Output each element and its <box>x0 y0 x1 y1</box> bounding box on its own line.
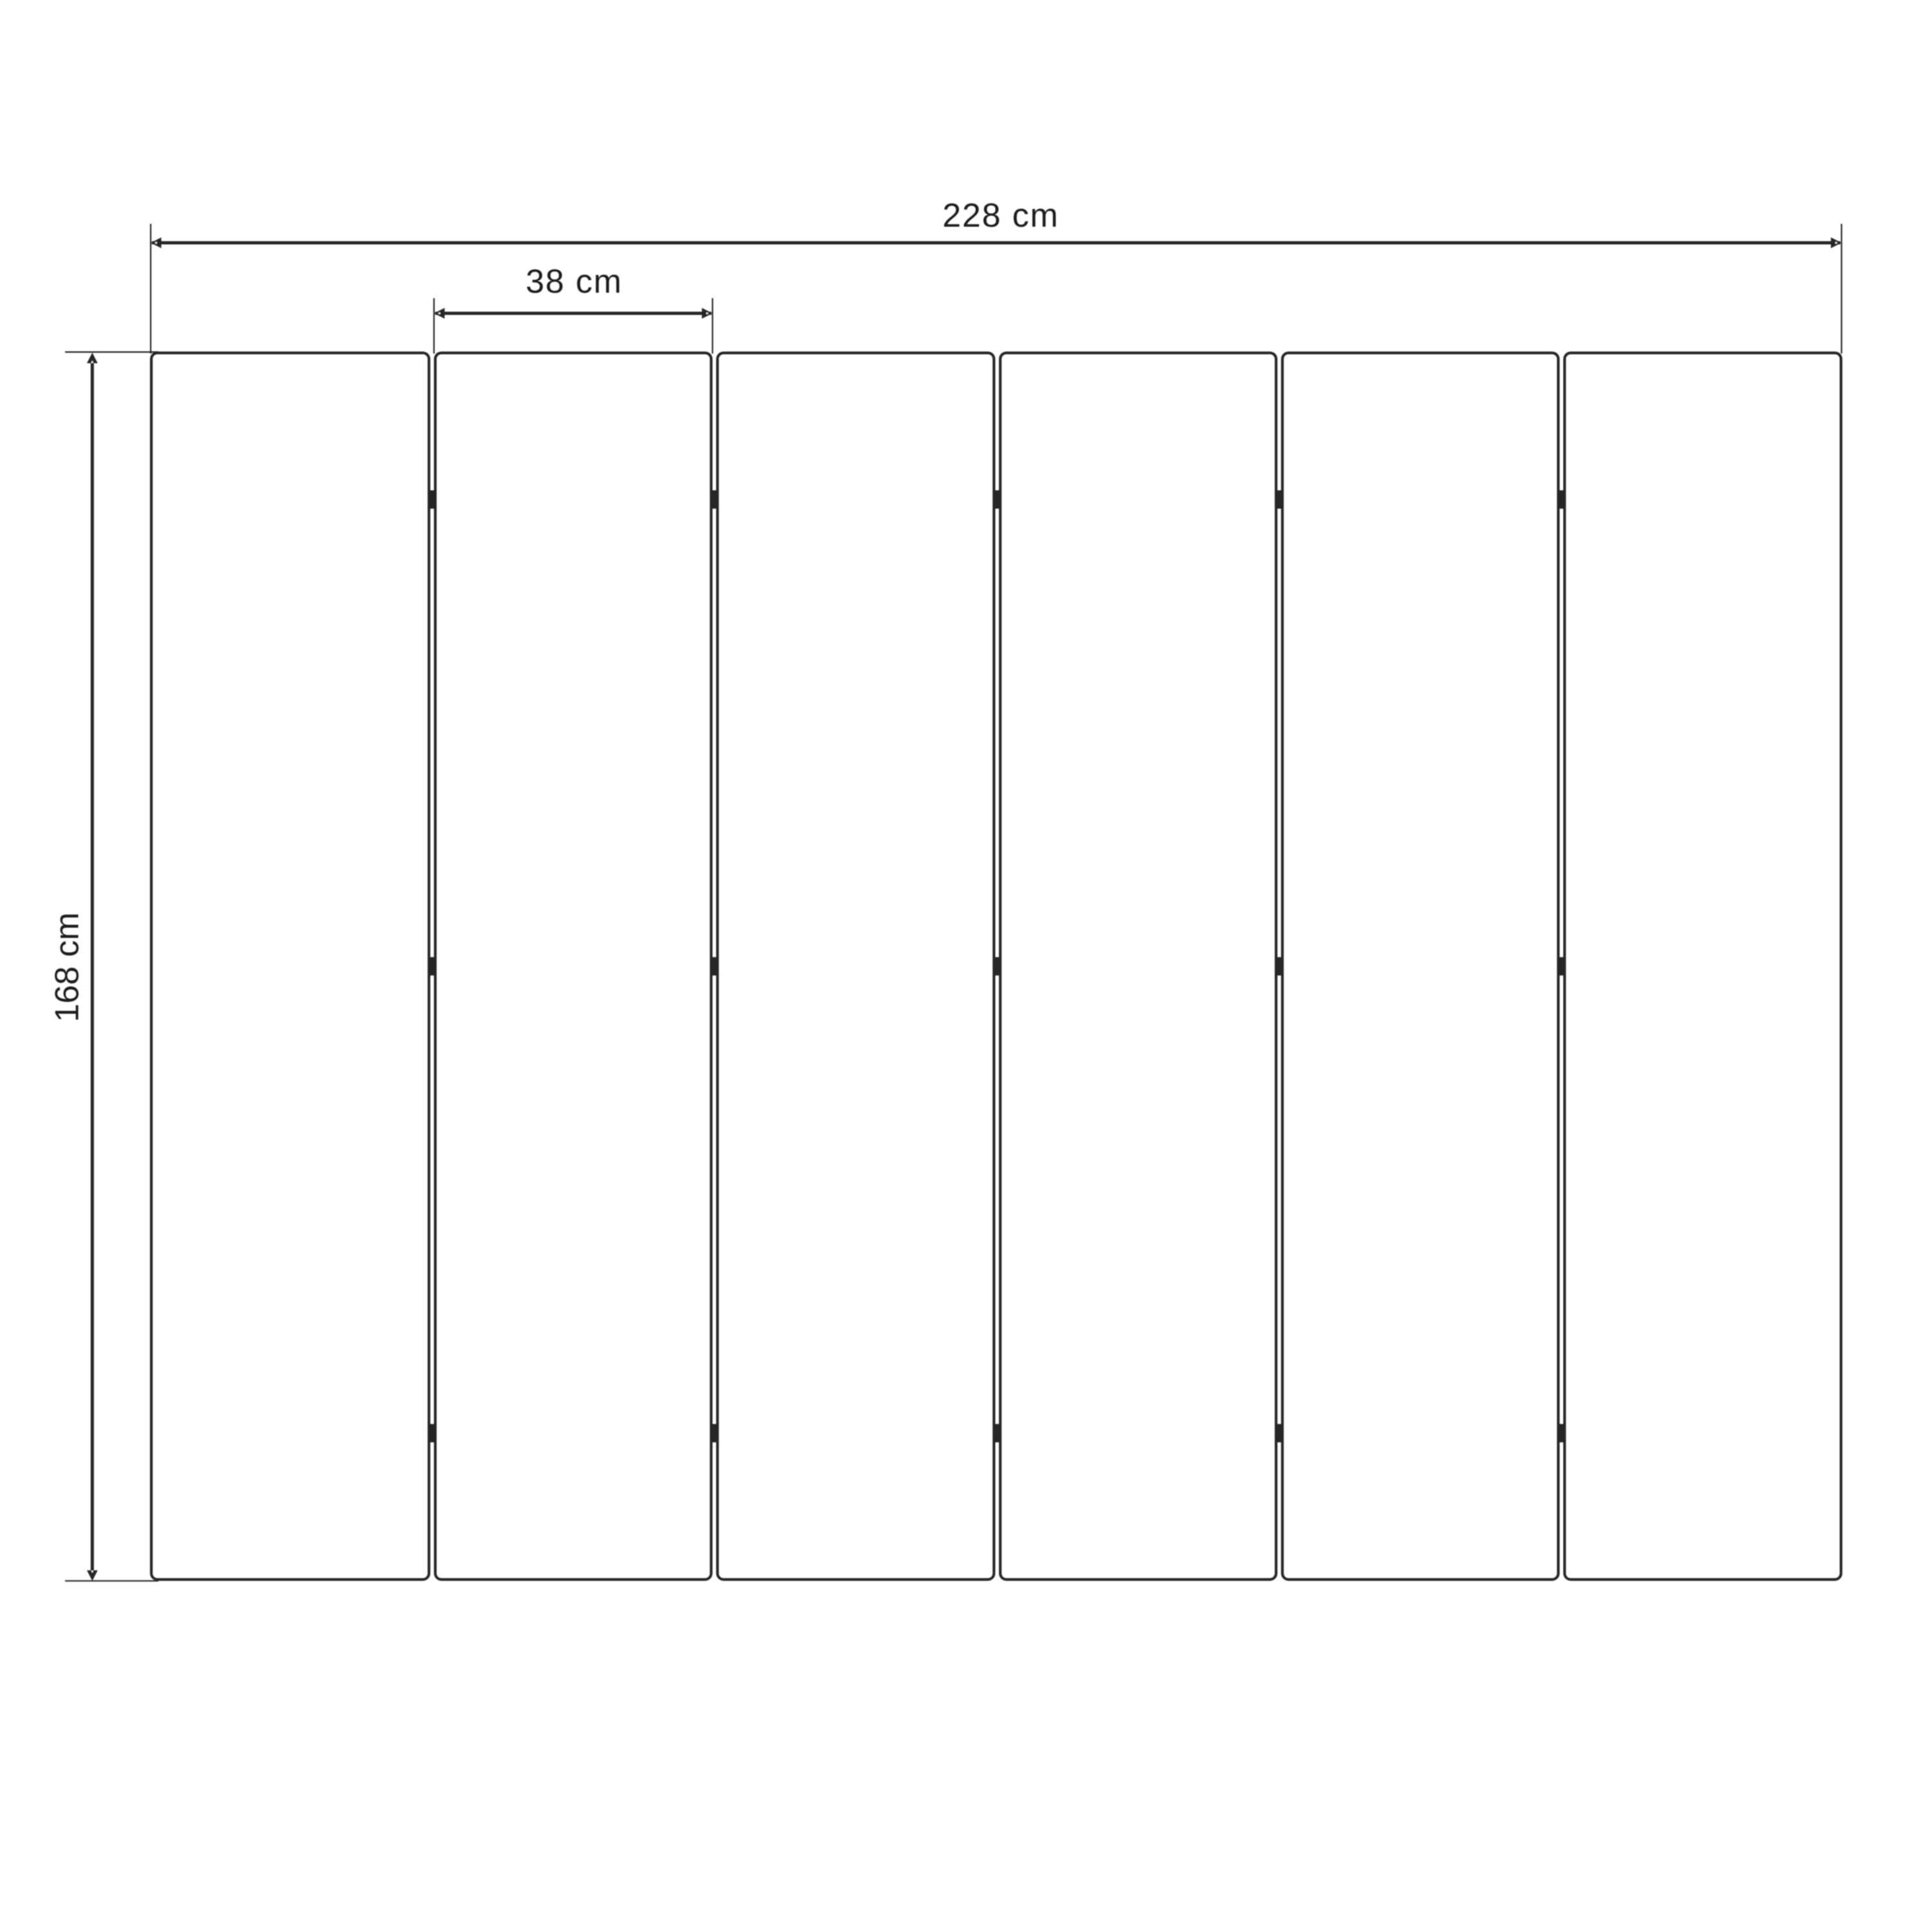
svg-text:228 cm: 228 cm <box>942 197 1059 234</box>
svg-text:38 cm: 38 cm <box>526 263 623 300</box>
svg-text:168 cm: 168 cm <box>49 913 86 1023</box>
